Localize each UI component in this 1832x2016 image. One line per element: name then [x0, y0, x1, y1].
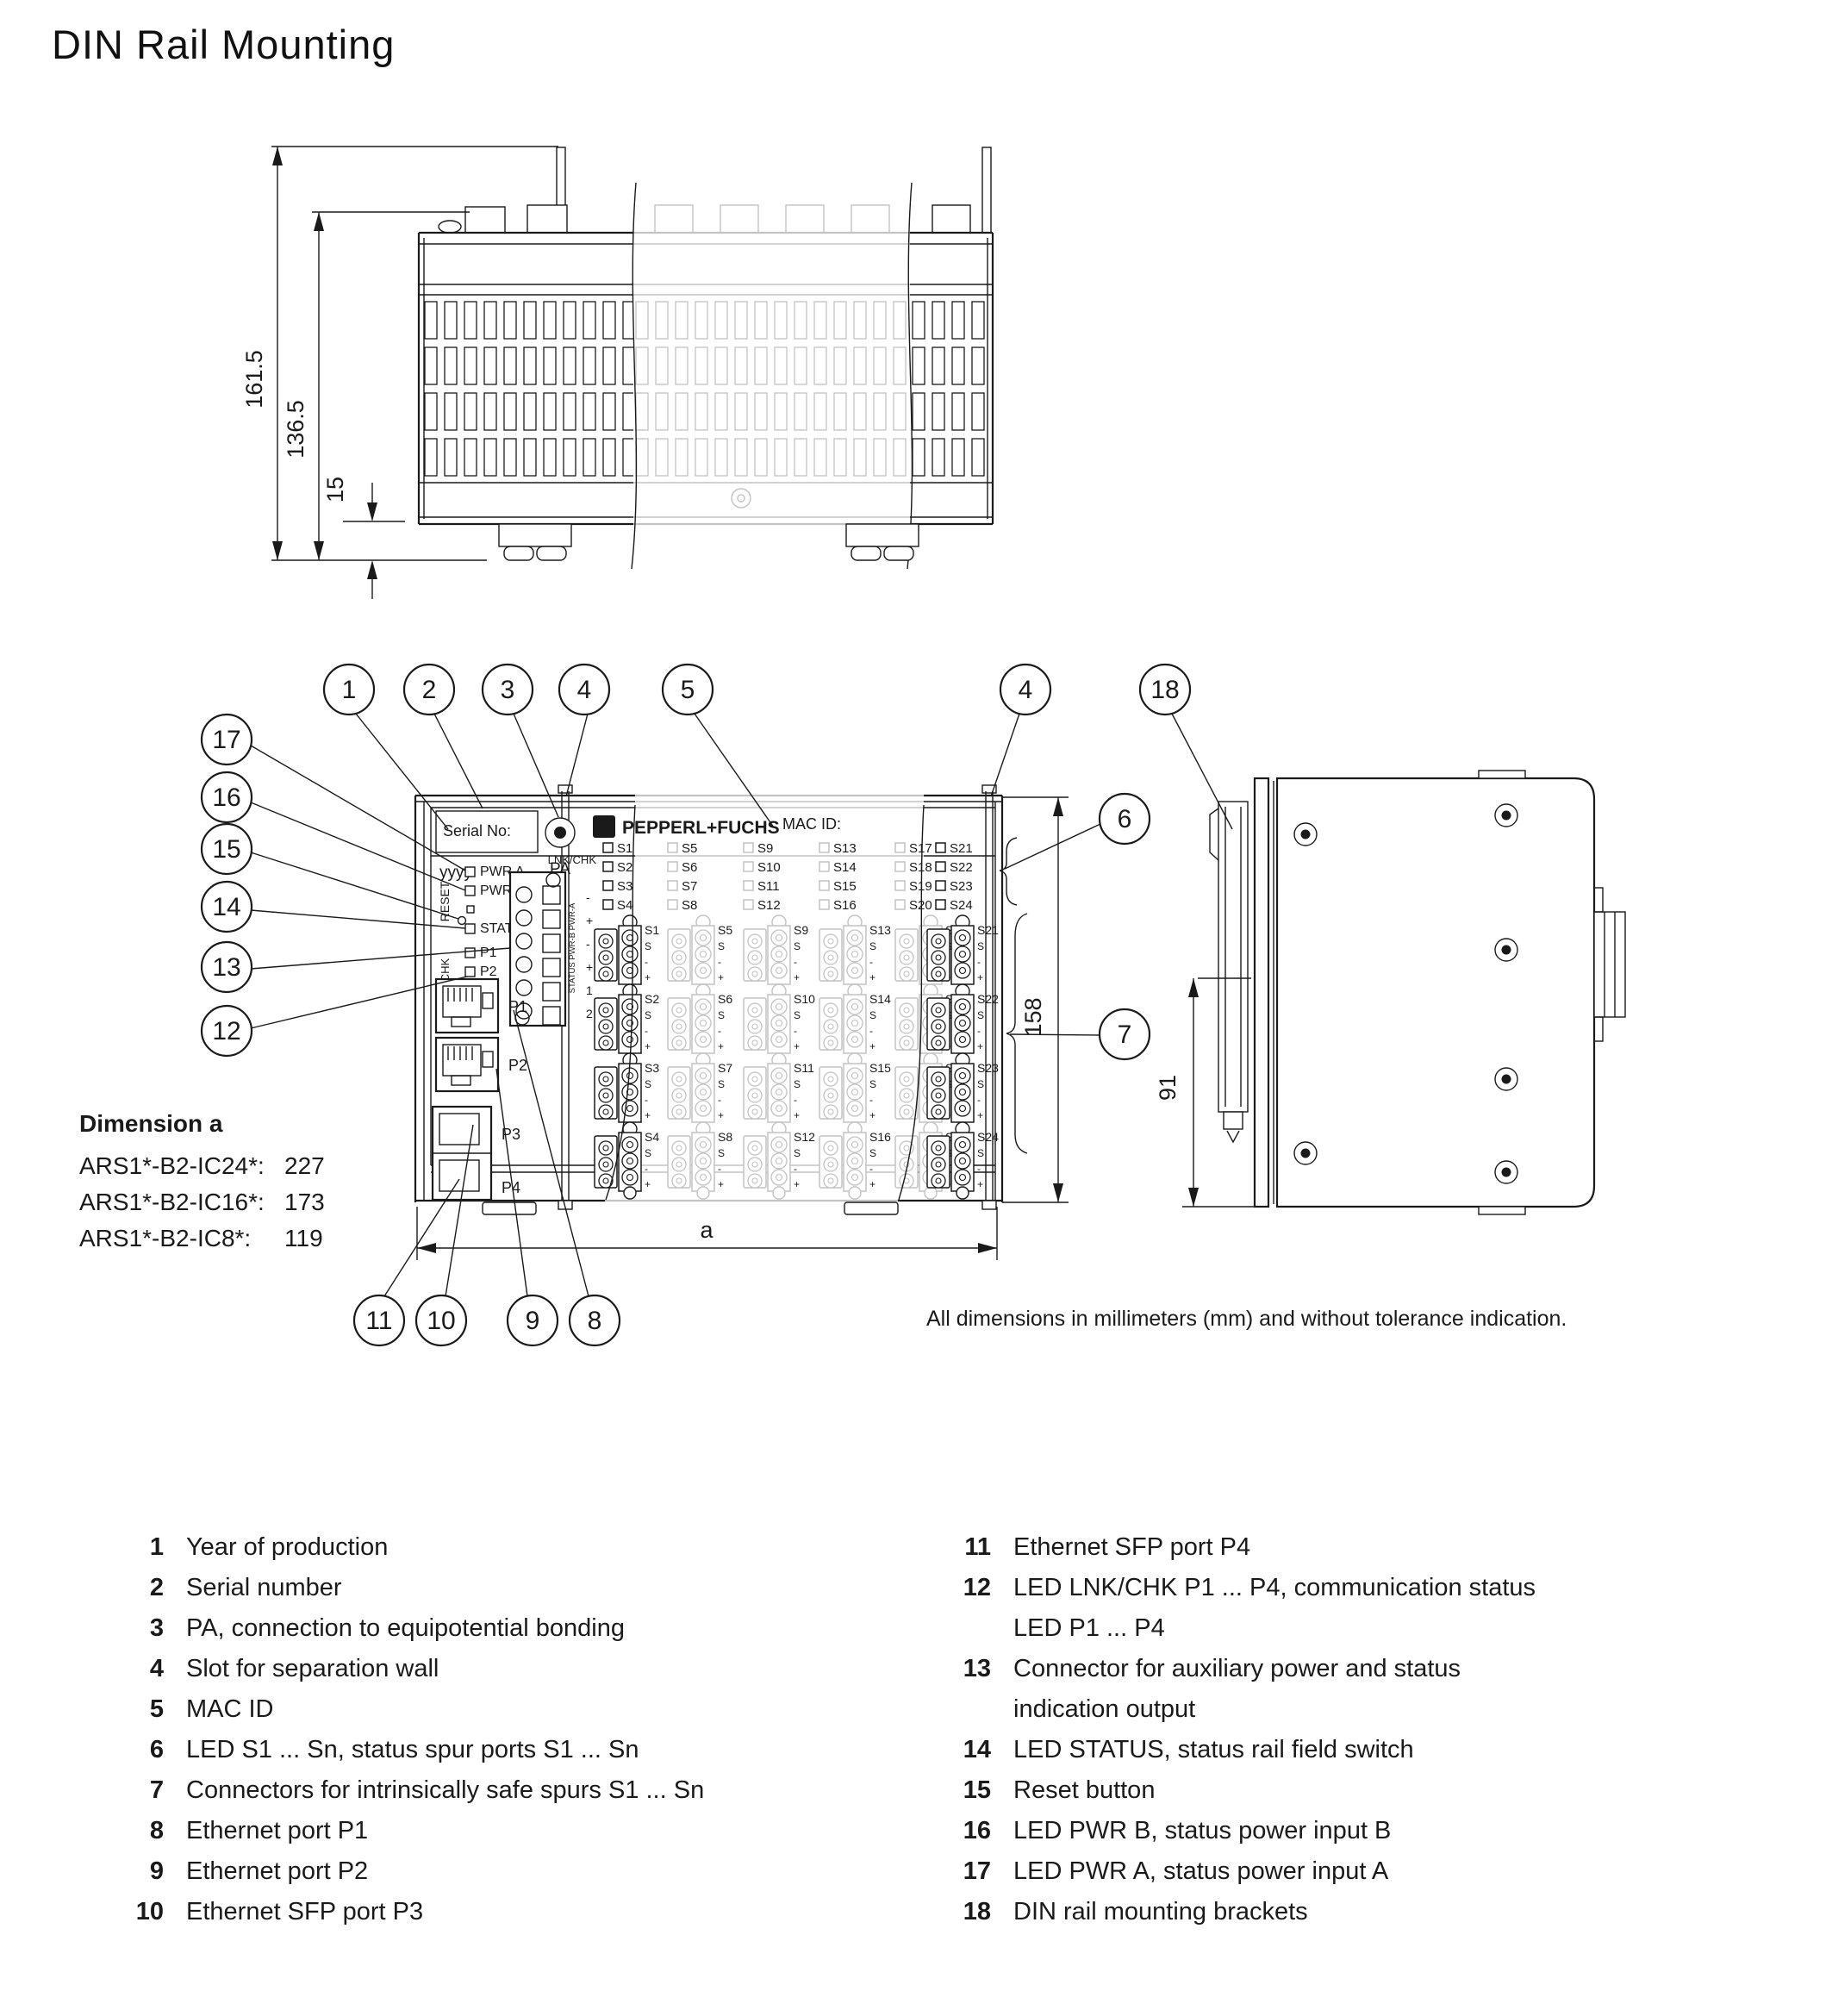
spur-terminal-mark: S: [645, 1009, 651, 1021]
spur-led-label: S19: [909, 879, 932, 894]
top-connector-housing-faded: [655, 205, 693, 233]
spur-terminal-mark: +: [869, 1040, 875, 1052]
spur-connector-column: S21S-+S22S-+S23S-+S24S-+: [927, 915, 999, 1199]
spur-terminal-mark: +: [869, 1178, 875, 1190]
spur-terminal-mark: -: [977, 956, 981, 968]
spur-led-label: S9: [757, 841, 773, 856]
spur-terminal-mark: -: [869, 1025, 873, 1037]
dim-label-body-height: 136.5: [283, 400, 308, 459]
svg-text:2: 2: [422, 676, 437, 704]
spur-led-label: S21: [950, 841, 973, 856]
spur-terminal-mark: S: [977, 1078, 984, 1090]
spur-connector-column: S13S-+S14S-+S15S-+S16S-+: [819, 915, 891, 1199]
spur-led-label: S20: [909, 898, 932, 913]
vent-grid: [910, 298, 988, 481]
svg-text:8: 8: [588, 1307, 602, 1335]
dimension-note: All dimensions in millimeters (mm) and w…: [926, 1307, 1567, 1332]
spur-led-label: S3: [617, 879, 632, 894]
top-connector-housing-faded: [720, 205, 758, 233]
legend-text: LED PWR A, status power input A: [1013, 1851, 1388, 1892]
din-clip-foot: [537, 546, 566, 560]
din-clip-foot: [483, 1202, 536, 1214]
spur-terminal-mark: +: [645, 1109, 651, 1121]
spur-led-group: S21S22S23S24: [936, 841, 973, 913]
legend-number: 13: [936, 1649, 991, 1689]
legend-text: indication output: [1013, 1689, 1195, 1730]
svg-text:7: 7: [1118, 1020, 1132, 1049]
spur-led-group: S13S14S15S16: [819, 841, 857, 913]
spur-connector-label: S21: [977, 923, 999, 937]
legend-text: Ethernet port P2: [186, 1851, 368, 1892]
legend-number: 14: [936, 1730, 991, 1770]
terminal-mark: +: [586, 960, 593, 974]
spur-terminal-mark: +: [794, 1178, 800, 1190]
legend-item: 6LED S1 ... Sn, status spur ports S1 ...…: [124, 1730, 704, 1770]
legend-number: 6: [124, 1730, 164, 1770]
spur-terminal-mark: S: [718, 1078, 725, 1090]
spur-connector-label: S11: [794, 1061, 814, 1075]
model-name: ARS1*-B2-IC16*:: [79, 1184, 284, 1220]
legend-item-continuation: indication output: [936, 1689, 1536, 1730]
legend-number: 2: [124, 1568, 164, 1608]
legend-text: Year of production: [186, 1527, 388, 1568]
legend-number: 16: [936, 1811, 991, 1851]
dim-label-front-height: 158: [1020, 997, 1046, 1036]
p1-led: [465, 948, 475, 958]
aux-led: [467, 906, 474, 913]
spur-connector-label: S14: [869, 992, 891, 1006]
legend-item: 14LED STATUS, status rail field switch: [936, 1730, 1536, 1770]
legend-item: 5MAC ID: [124, 1689, 704, 1730]
spur-led-label: S16: [833, 898, 857, 913]
legend-item: 13Connector for auxiliary power and stat…: [936, 1649, 1536, 1689]
ethernet-port-p2-label: P2: [508, 1057, 527, 1074]
svg-text:5: 5: [681, 676, 695, 704]
spur-connector-label: S22: [977, 992, 999, 1006]
model-name: ARS1*-B2-IC24*:: [79, 1148, 284, 1184]
spur-led-label: S23: [950, 879, 973, 894]
ethernet-port-p2[interactable]: P2: [436, 1038, 527, 1091]
spur-terminal-mark: -: [718, 1094, 721, 1106]
spur-terminal-mark: -: [794, 1025, 797, 1037]
legend-text: LED STATUS, status rail field switch: [1013, 1730, 1414, 1770]
legend-text: LED P1 ... P4: [1013, 1608, 1165, 1649]
spur-terminal-mark: +: [794, 1040, 800, 1052]
terminal-mark: -: [586, 890, 590, 904]
spur-terminal-mark: -: [645, 1094, 648, 1106]
model-value: 119: [284, 1225, 323, 1251]
spur-connector-label: S8: [718, 1130, 732, 1144]
terminal-mark: 2: [586, 1007, 593, 1020]
spur-status-leds: S1S2S3S4S5S6S7S8S9S10S11S12S13S14S15S16S…: [603, 841, 973, 913]
spur-terminal-mark: -: [794, 956, 797, 968]
p2-led: [465, 967, 475, 977]
spur-terminal-mark: -: [869, 1094, 873, 1106]
legend-item: 2Serial number: [124, 1568, 704, 1608]
spur-connector-label: S1: [645, 923, 659, 937]
spur-terminal-mark: -: [645, 1163, 648, 1175]
legend-text: MAC ID: [186, 1689, 274, 1730]
din-clip-foot: [851, 546, 881, 560]
legend-item: 15Reset button: [936, 1770, 1536, 1811]
dimension-a-row: ARS1*-B2-IC16*:173: [79, 1184, 325, 1220]
dimension-158: 158: [1002, 797, 1069, 1202]
legend-text: LED LNK/CHK P1 ... P4, communication sta…: [1013, 1568, 1536, 1608]
svg-text:4: 4: [1019, 676, 1033, 704]
legend-item: 17LED PWR A, status power input A: [936, 1851, 1536, 1892]
din-clip-foot: [884, 546, 913, 560]
legend-text: Connector for auxiliary power and status: [1013, 1649, 1461, 1689]
legend-text: Serial number: [186, 1568, 342, 1608]
pa-ground-screw-center: [554, 827, 566, 839]
ethernet-port-p1-label: P1: [508, 998, 527, 1015]
spur-led-label: S7: [682, 879, 697, 894]
spur-led-label: S4: [617, 898, 632, 913]
lnkchk-label: LNK/CHK: [548, 853, 597, 866]
legend-item: 11Ethernet SFP port P4: [936, 1527, 1536, 1568]
spur-terminal-mark: +: [977, 1178, 983, 1190]
aux-block-vertical-label: STATUS PWR-B PWR-A: [568, 902, 577, 993]
model-value: 173: [284, 1189, 325, 1215]
spur-terminal-mark: +: [645, 1040, 651, 1052]
legend-text: DIN rail mounting brackets: [1013, 1892, 1308, 1932]
legend-item: 16LED PWR B, status power input B: [936, 1811, 1536, 1851]
legend-text: Slot for separation wall: [186, 1649, 439, 1689]
model-name: ARS1*-B2-IC8*:: [79, 1220, 284, 1257]
spur-terminal-mark: S: [645, 940, 651, 952]
spur-connector-label: S23: [977, 1061, 999, 1075]
spur-terminal-mark: S: [869, 940, 876, 952]
spur-led-label: S14: [833, 860, 857, 875]
reset-button[interactable]: [458, 917, 466, 925]
brand-text: PEPPERL+FUCHS: [622, 818, 780, 838]
legend-text: Ethernet port P1: [186, 1811, 368, 1851]
spur-connector-column: S5S-+S6S-+S7S-+S8S-+: [668, 915, 732, 1199]
spur-terminal-mark: -: [869, 956, 873, 968]
dim-label-bracket-height: 91: [1155, 1075, 1181, 1101]
legend-item: 3PA, connection to equipotential bonding: [124, 1608, 704, 1649]
spur-led-label: S13: [833, 841, 857, 856]
spur-led-label: S15: [833, 879, 857, 894]
spur-led-label: S17: [909, 841, 932, 856]
spur-terminal-mark: S: [977, 1147, 984, 1159]
spur-connector-label: S2: [645, 992, 659, 1006]
svg-text:11: 11: [365, 1307, 392, 1335]
dimension-a-heading: Dimension a: [79, 1110, 325, 1138]
spur-connector-column: S9S-+S10S-+S11S-+S12S-+: [744, 915, 815, 1199]
legend-text: LED PWR B, status power input B: [1013, 1811, 1391, 1851]
spur-terminal-mark: +: [718, 1109, 724, 1121]
svg-text:17: 17: [212, 726, 240, 754]
svg-text:6: 6: [1118, 805, 1132, 833]
spur-terminal-mark: -: [977, 1025, 981, 1037]
dim-label-clip-offset: 15: [322, 477, 348, 502]
spur-led-label: S8: [682, 898, 697, 913]
legend-number: 15: [936, 1770, 991, 1811]
spur-led-label: S11: [757, 879, 780, 894]
legend-item-continuation: LED P1 ... P4: [936, 1608, 1536, 1649]
spur-terminal-mark: S: [718, 1147, 725, 1159]
spur-led-label: S18: [909, 860, 932, 875]
pf-logo-letter: F: [600, 821, 608, 836]
spur-terminal-mark: S: [869, 1078, 876, 1090]
spur-terminal-mark: S: [718, 1009, 725, 1021]
legend-item: 7Connectors for intrinsically safe spurs…: [124, 1770, 704, 1811]
legend-number: 5: [124, 1689, 164, 1730]
legend-item: 8Ethernet port P1: [124, 1811, 704, 1851]
mac-id-label: MAC ID:: [782, 815, 841, 833]
legend-item: 12LED LNK/CHK P1 ... P4, communication s…: [936, 1568, 1536, 1608]
spur-connector-label: S4: [645, 1130, 659, 1144]
spur-terminal-mark: S: [645, 1078, 651, 1090]
top-connector-housing: [465, 207, 505, 233]
svg-text:3: 3: [501, 676, 515, 704]
svg-text:4: 4: [577, 676, 592, 704]
spur-terminal-mark: +: [718, 971, 724, 983]
spur-connector-label: S24: [977, 1130, 999, 1144]
legend-number: 11: [936, 1527, 991, 1568]
spur-terminal-mark: -: [869, 1163, 873, 1175]
model-value: 227: [284, 1152, 325, 1179]
spur-terminal-mark: -: [645, 956, 648, 968]
spur-terminal-mark: +: [645, 1178, 651, 1190]
svg-text:1: 1: [342, 676, 357, 704]
top-connector-housing: [527, 205, 567, 233]
dim-label-total-height: 161.5: [241, 350, 267, 409]
top-bump: [439, 221, 461, 233]
spur-terminal-mark: +: [718, 1040, 724, 1052]
spur-led-label: S5: [682, 841, 697, 856]
side-view-drawing: 91: [1155, 771, 1625, 1214]
top-view-drawing: 161.5 136.5 15: [241, 147, 993, 599]
terminal-mark: +: [586, 914, 593, 927]
spur-terminal-mark: +: [869, 1109, 875, 1121]
spur-terminal-mark: +: [977, 971, 983, 983]
spur-connectors: S1S-+S2S-+S3S-+S4S-+S5S-+S6S-+S7S-+S8S-+…: [595, 915, 999, 1199]
spur-terminal-mark: +: [977, 1109, 983, 1121]
top-connector-housing-faded: [786, 205, 824, 233]
terminal-mark: -: [586, 937, 590, 951]
legend-text: Ethernet SFP port P3: [186, 1892, 423, 1932]
legend-number: 8: [124, 1811, 164, 1851]
legend-number: 18: [936, 1892, 991, 1932]
spur-connector-label: S12: [794, 1130, 815, 1144]
status-led: [465, 924, 475, 933]
spur-led-group: S1S2S3S4: [603, 841, 632, 913]
top-connector-housing: [932, 205, 970, 233]
dimension-a-row: ARS1*-B2-IC8*:119: [79, 1220, 325, 1257]
spur-led-group: S17S18S19S20: [895, 841, 932, 913]
svg-text:13: 13: [212, 953, 240, 982]
callouts: 1 2 3 4 5 4 18 17 16 15 14 13 12 6 7 11 …: [202, 665, 1232, 1345]
legend-item: 1Year of production: [124, 1527, 704, 1568]
dimension-a-row: ARS1*-B2-IC24*:227: [79, 1148, 325, 1184]
din-rail-bracket: [1210, 802, 1248, 1142]
legend-number: 12: [936, 1568, 991, 1608]
din-clip-foot: [504, 546, 533, 560]
svg-text:16: 16: [212, 783, 240, 812]
legend-item: 18DIN rail mounting brackets: [936, 1892, 1536, 1932]
spur-terminal-mark: +: [718, 1178, 724, 1190]
legend-number: 4: [124, 1649, 164, 1689]
spur-terminal-mark: -: [718, 1163, 721, 1175]
din-clip: [846, 524, 919, 546]
spur-led-label: S2: [617, 860, 632, 875]
legend-number: 10: [124, 1892, 164, 1932]
legend-number: 1: [124, 1527, 164, 1568]
spur-terminal-mark: -: [794, 1163, 797, 1175]
spur-connector-label: S13: [869, 923, 891, 937]
spur-terminal-mark: S: [794, 1009, 801, 1021]
side-rear-connector: [1594, 888, 1625, 1041]
spur-terminal-mark: +: [794, 971, 800, 983]
spur-terminal-mark: S: [794, 1147, 801, 1159]
spur-terminal-mark: -: [645, 1025, 648, 1037]
side-top-tab: [1479, 771, 1525, 778]
spur-terminal-mark: -: [977, 1094, 981, 1106]
spur-terminal-mark: -: [718, 1025, 721, 1037]
spur-terminal-mark: S: [977, 940, 984, 952]
spur-connector-label: S9: [794, 923, 808, 937]
svg-text:9: 9: [526, 1307, 540, 1335]
legend-number: 9: [124, 1851, 164, 1892]
spur-terminal-mark: S: [977, 1009, 984, 1021]
svg-text:15: 15: [212, 835, 240, 864]
legend-text: Connectors for intrinsically safe spurs …: [186, 1770, 704, 1811]
dim-label-width-a: a: [700, 1217, 713, 1243]
p2-led-label: P2: [480, 964, 497, 979]
top-connector-housing-faded: [851, 205, 889, 233]
din-clip-foot: [844, 1202, 898, 1214]
spur-connector-label: S15: [869, 1061, 891, 1075]
spur-terminal-mark: -: [977, 1163, 981, 1175]
spur-connector-label: S7: [718, 1061, 732, 1075]
spur-connector-label: S3: [645, 1061, 659, 1075]
svg-text:10: 10: [427, 1307, 455, 1335]
spur-terminal-mark: S: [718, 940, 725, 952]
spur-led-label: S24: [950, 898, 973, 913]
legend-number: 7: [124, 1770, 164, 1811]
spur-led-group: S5S6S7S8: [668, 841, 697, 913]
spur-terminal-mark: +: [794, 1109, 800, 1121]
spur-connector-label: S6: [718, 992, 732, 1006]
svg-text:18: 18: [1150, 676, 1179, 704]
serial-label: Serial No:: [443, 822, 511, 839]
spur-terminal-mark: S: [869, 1009, 876, 1021]
vent-grid-faded: [633, 298, 910, 481]
legend-text: LED S1 ... Sn, status spur ports S1 ... …: [186, 1730, 639, 1770]
spur-connector-column: S1S-+S2S-+S3S-+S4S-+: [595, 915, 659, 1199]
spur-led-label: S10: [757, 860, 781, 875]
legend-text: Reset button: [1013, 1770, 1155, 1811]
legend-item: 9Ethernet port P2: [124, 1851, 704, 1892]
spur-terminal-mark: S: [794, 940, 801, 952]
spur-terminal-mark: +: [645, 971, 651, 983]
vent-grid: [422, 298, 633, 481]
dimension-a-table: Dimension a ARS1*-B2-IC24*:227 ARS1*-B2-…: [79, 1110, 325, 1257]
spur-terminal-mark: +: [869, 971, 875, 983]
spur-led-label: S22: [950, 860, 973, 875]
sfp-port-p4-label: P4: [502, 1179, 520, 1196]
din-clip: [499, 524, 571, 546]
spur-connector-label: S10: [794, 992, 815, 1006]
pwr-b-led: [465, 886, 475, 896]
spur-terminal-mark: S: [869, 1147, 876, 1159]
svg-text:12: 12: [212, 1017, 240, 1045]
spur-terminal-mark: -: [718, 956, 721, 968]
legend-column-left: 1Year of production 2Serial number 3PA, …: [124, 1527, 704, 1932]
spur-terminal-mark: S: [794, 1078, 801, 1090]
spur-terminal-mark: -: [794, 1094, 797, 1106]
spur-connector-label: S16: [869, 1130, 891, 1144]
terminal-mark: 1: [586, 983, 593, 997]
spur-led-group: S9S10S11S12: [744, 841, 781, 913]
spur-led-label: S12: [757, 898, 781, 913]
legend-column-right: 11Ethernet SFP port P4 12LED LNK/CHK P1 …: [936, 1527, 1536, 1932]
spur-terminal-mark: +: [977, 1040, 983, 1052]
legend-item: 4Slot for separation wall: [124, 1649, 704, 1689]
side-bottom-tab: [1479, 1207, 1525, 1214]
side-body: [1277, 778, 1594, 1207]
legend-text: Ethernet SFP port P4: [1013, 1527, 1250, 1568]
separation-wall-post: [982, 147, 991, 233]
legend-number: 3: [124, 1608, 164, 1649]
legend-number: 17: [936, 1851, 991, 1892]
legend-item: 10Ethernet SFP port P3: [124, 1892, 704, 1932]
svg-text:14: 14: [212, 893, 240, 921]
spur-led-label: S6: [682, 860, 697, 875]
spur-led-label: S1: [617, 841, 632, 856]
spur-terminal-mark: S: [645, 1147, 651, 1159]
pwr-a-led: [465, 867, 475, 877]
spur-connector-label: S5: [718, 923, 732, 937]
legend-text: PA, connection to equipotential bonding: [186, 1608, 625, 1649]
dimension-15: 15: [322, 477, 405, 599]
p1-led-label: P1: [480, 946, 497, 960]
side-front-panel-edge: [1255, 778, 1268, 1207]
